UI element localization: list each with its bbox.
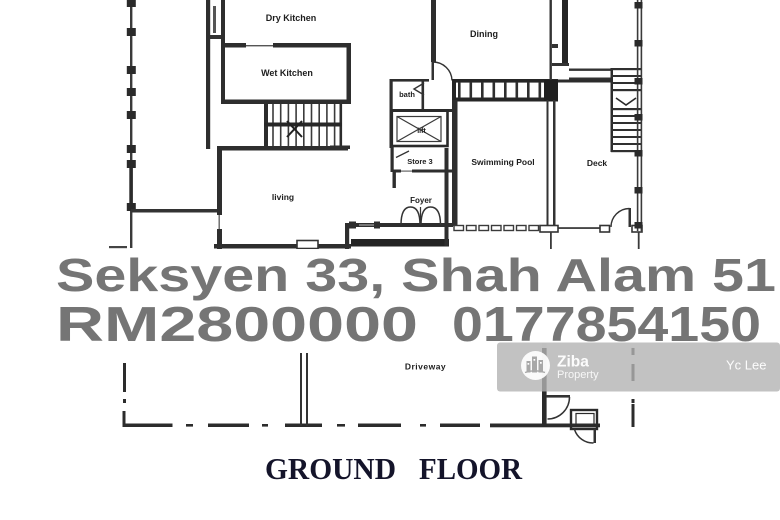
svg-text:Yc Lee: Yc Lee — [726, 358, 766, 373]
svg-text:lift: lift — [417, 128, 426, 135]
svg-text:FLOOR: FLOOR — [419, 451, 523, 486]
svg-text:Dry Kitchen: Dry Kitchen — [266, 13, 317, 23]
svg-text:Ziba: Ziba — [557, 354, 589, 371]
svg-text:Dining: Dining — [470, 29, 498, 39]
svg-text:Driveway: Driveway — [405, 362, 446, 372]
svg-text:Property: Property — [557, 369, 599, 381]
svg-text:Seksyen 33, Shah Alam 51: Seksyen 33, Shah Alam 51 — [56, 249, 776, 301]
svg-text:bath: bath — [399, 90, 415, 99]
svg-text:Deck: Deck — [587, 158, 608, 168]
svg-text:Foyer: Foyer — [410, 196, 432, 205]
svg-text:GROUND: GROUND — [265, 451, 396, 486]
svg-text:living: living — [272, 192, 294, 202]
svg-text:Swimming Pool: Swimming Pool — [471, 157, 534, 167]
svg-text:Store 3: Store 3 — [407, 157, 432, 166]
svg-text:Wet Kitchen: Wet Kitchen — [261, 68, 313, 78]
svg-text:RM2800000: RM2800000 — [56, 298, 418, 352]
